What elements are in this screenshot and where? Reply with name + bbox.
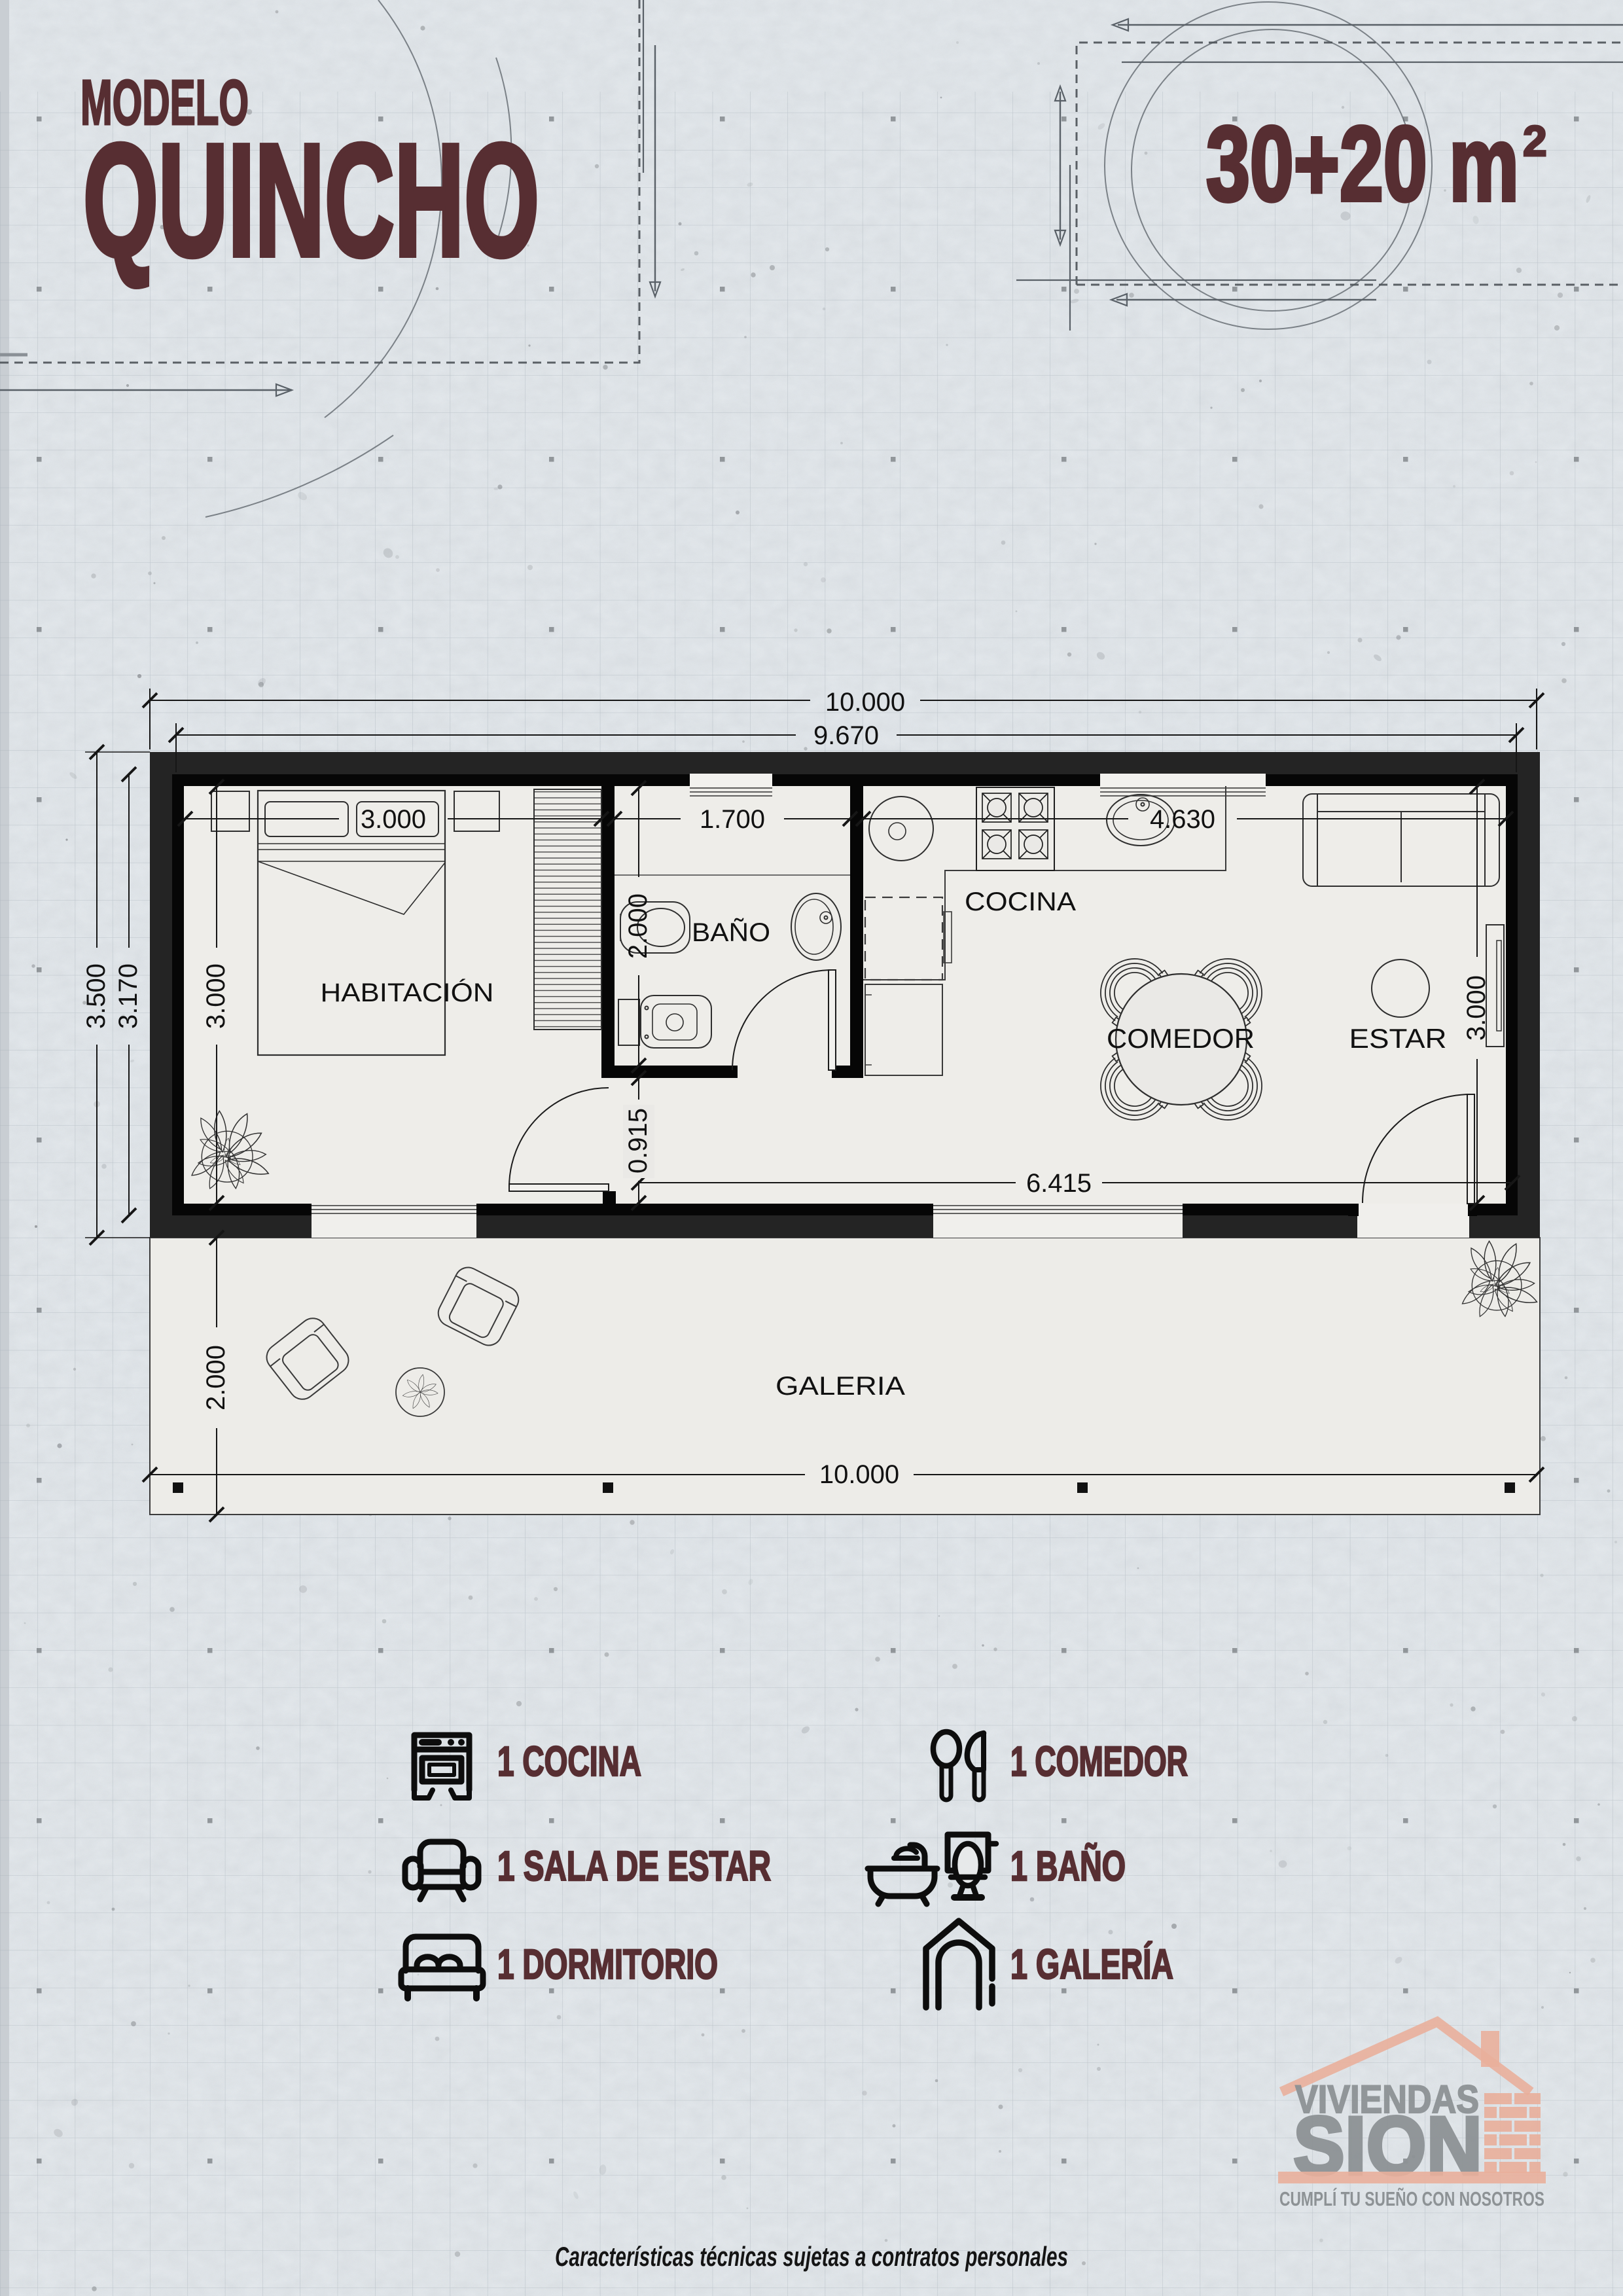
svg-text:10.000: 10.000 [825,688,905,717]
svg-text:9.670: 9.670 [813,721,879,750]
svg-text:COCINA: COCINA [965,888,1076,916]
svg-text:3.000: 3.000 [361,805,426,834]
svg-text:2.000: 2.000 [624,893,652,959]
svg-text:3.000: 3.000 [202,963,230,1029]
svg-text:3.500: 3.500 [82,963,111,1029]
svg-text:4.630: 4.630 [1150,805,1215,834]
svg-text:6.415: 6.415 [1026,1169,1092,1198]
svg-text:10.000: 10.000 [819,1460,899,1489]
svg-text:BAÑO: BAÑO [692,918,770,947]
svg-text:QUINCHO: QUINCHO [83,111,539,289]
svg-text:1 GALERÍA: 1 GALERÍA [1010,1941,1173,1988]
svg-text:1 DORMITORIO: 1 DORMITORIO [497,1941,718,1988]
svg-text:1.700: 1.700 [700,805,765,834]
svg-text:ESTAR: ESTAR [1349,1023,1447,1054]
svg-text:30+20 m: 30+20 m [1206,105,1519,223]
svg-text:2: 2 [1523,117,1547,165]
svg-text:3.170: 3.170 [114,963,143,1029]
svg-text:0.915: 0.915 [624,1108,652,1174]
svg-text:1 BAÑO: 1 BAÑO [1010,1842,1126,1890]
svg-text:CUMPLÍ TU SUEÑO CON NOSOTROS: CUMPLÍ TU SUEÑO CON NOSOTROS [1279,2187,1544,2210]
svg-text:1 SALA DE ESTAR: 1 SALA DE ESTAR [497,1842,771,1890]
svg-text:HABITACIÓN: HABITACIÓN [321,978,494,1007]
svg-text:1 COMEDOR: 1 COMEDOR [1010,1738,1188,1785]
svg-text:COMEDOR: COMEDOR [1107,1023,1255,1054]
svg-text:GALERIA: GALERIA [776,1372,905,1401]
svg-text:2.000: 2.000 [202,1345,230,1410]
svg-text:Características técnicas sujet: Características técnicas sujetas a contr… [555,2241,1068,2272]
svg-text:3.000: 3.000 [1462,975,1491,1041]
svg-text:1 COCINA: 1 COCINA [497,1738,641,1785]
